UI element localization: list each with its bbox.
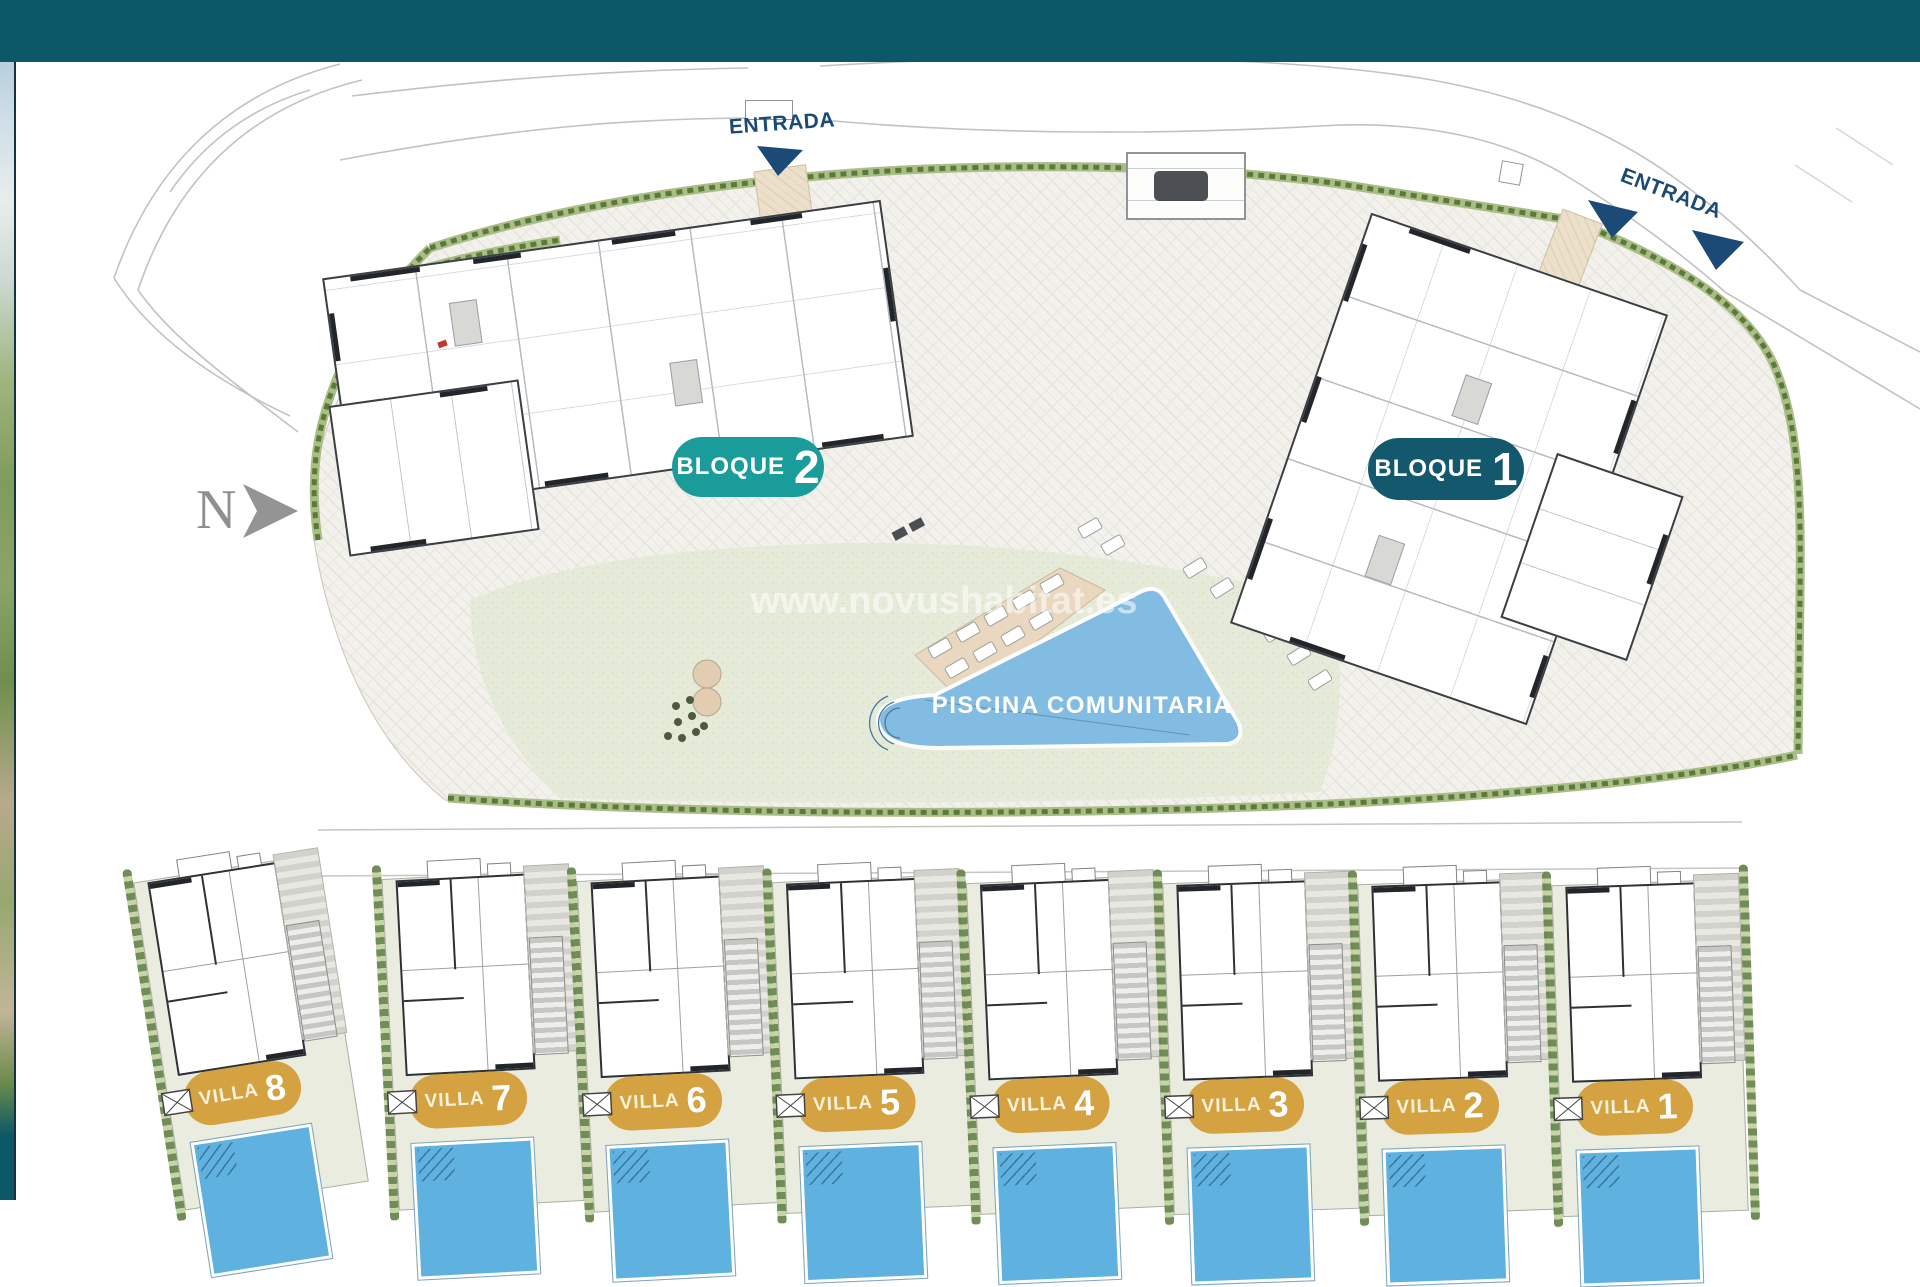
pool-steps	[1194, 1153, 1231, 1186]
villa-7-plot: VILLA 7	[381, 869, 584, 1210]
villa-pool	[799, 1142, 927, 1283]
plot-marker-icon	[775, 1093, 806, 1118]
villa-number: 3	[1268, 1083, 1289, 1126]
bloque-1-number: 1	[1492, 442, 1518, 496]
pool-steps	[1000, 1152, 1037, 1186]
bloque-2-number: 2	[794, 440, 820, 494]
villa-stairs	[1113, 941, 1152, 1060]
car	[1154, 171, 1208, 201]
villa-pool	[606, 1140, 735, 1282]
villa-pool	[1383, 1145, 1510, 1285]
villa-1-badge: VILLA 1	[1574, 1079, 1694, 1137]
villa-5-plot: VILLA 5	[772, 874, 972, 1214]
villa-label: VILLA	[1396, 1095, 1457, 1119]
villa-6-badge: VILLA 6	[603, 1072, 724, 1132]
villa-stairs	[1697, 945, 1735, 1064]
villa-pool	[1188, 1144, 1315, 1284]
bloque-1-badge: BLOQUE 1	[1368, 438, 1524, 500]
villa-2-badge: VILLA 2	[1380, 1078, 1500, 1136]
plot-marker-icon	[969, 1094, 1000, 1119]
villa-number: 8	[262, 1066, 288, 1111]
villa-label: VILLA	[813, 1092, 874, 1117]
pool-steps	[1389, 1154, 1426, 1187]
utility-box	[1498, 160, 1523, 185]
top-banner	[0, 0, 1920, 62]
entrance-pergola	[1126, 152, 1246, 220]
pool-steps	[613, 1150, 651, 1184]
villa-stairs	[724, 938, 764, 1058]
bloque-2-badge: BLOQUE 2	[672, 437, 824, 497]
villa-pool	[411, 1138, 540, 1280]
villa-number: 6	[685, 1079, 707, 1122]
villa-label: VILLA	[619, 1090, 680, 1115]
villa-6-plot: VILLA 6	[576, 871, 779, 1212]
villa-label: VILLA	[1590, 1096, 1651, 1120]
villa-2-plot: VILLA 2	[1357, 878, 1554, 1216]
villa-floor-plan	[1371, 881, 1508, 1081]
plot-marker-icon	[582, 1092, 613, 1118]
pool-steps	[418, 1148, 456, 1182]
villa-stairs	[529, 936, 569, 1056]
villa-floor-plan	[786, 878, 924, 1079]
villa-1-plot: VILLA 1	[1551, 879, 1748, 1217]
stairwell	[1364, 535, 1405, 586]
plot-marker-icon	[160, 1088, 193, 1116]
stairwell	[669, 359, 703, 406]
north-arrow-icon	[243, 484, 298, 538]
pool-steps	[1583, 1155, 1620, 1188]
villa-5-badge: VILLA 5	[796, 1074, 916, 1133]
villa-7-badge: VILLA 7	[408, 1070, 529, 1130]
villa-label: VILLA	[198, 1080, 261, 1111]
villa-floor-plan	[591, 876, 731, 1079]
villa-4-plot: VILLA 4	[966, 875, 1166, 1215]
bloque-2-label: BLOQUE	[676, 453, 785, 481]
villa-3-plot: VILLA 3	[1162, 877, 1359, 1215]
villa-floor-plan	[1176, 880, 1313, 1080]
communal-pool-label: PISCINA COMUNITARIA	[912, 692, 1252, 720]
villa-label: VILLA	[424, 1088, 485, 1113]
villa-4-badge: VILLA 4	[990, 1075, 1110, 1134]
plot-marker-icon	[1359, 1095, 1390, 1120]
villa-floor-plan	[1565, 882, 1702, 1082]
pool-steps	[197, 1142, 238, 1179]
villa-stairs	[1503, 944, 1541, 1063]
villa-floor-plan	[396, 874, 536, 1077]
bloque-1-label: BLOQUE	[1374, 455, 1483, 483]
watermark: www.novushabitat.es	[724, 580, 1164, 623]
north-label: N	[196, 478, 236, 542]
villa-label: VILLA	[1007, 1093, 1068, 1118]
bloque-2-wing	[328, 379, 539, 556]
villa-pool	[993, 1143, 1121, 1284]
villa-stairs	[1308, 943, 1346, 1062]
villa-stairs	[919, 940, 958, 1059]
villa-pool	[1577, 1146, 1704, 1286]
villa-number: 1	[1657, 1085, 1678, 1128]
left-photo-strip	[0, 62, 16, 1200]
villa-3-badge: VILLA 3	[1185, 1077, 1305, 1135]
villa-number: 4	[1073, 1082, 1095, 1125]
villa-number: 2	[1463, 1084, 1484, 1127]
plot-marker-icon	[1553, 1096, 1584, 1121]
stairwell	[449, 299, 483, 346]
pool-steps	[806, 1151, 843, 1185]
villa-number: 5	[879, 1081, 901, 1124]
villa-number: 7	[490, 1077, 512, 1120]
villa-pool	[191, 1124, 333, 1277]
villa-floor-plan	[980, 879, 1118, 1080]
stairwell	[1451, 374, 1492, 425]
villa-label: VILLA	[1201, 1094, 1262, 1118]
plot-marker-icon	[387, 1090, 418, 1116]
plot-marker-icon	[1164, 1094, 1195, 1119]
entrance-arrow-icon	[1692, 230, 1744, 270]
